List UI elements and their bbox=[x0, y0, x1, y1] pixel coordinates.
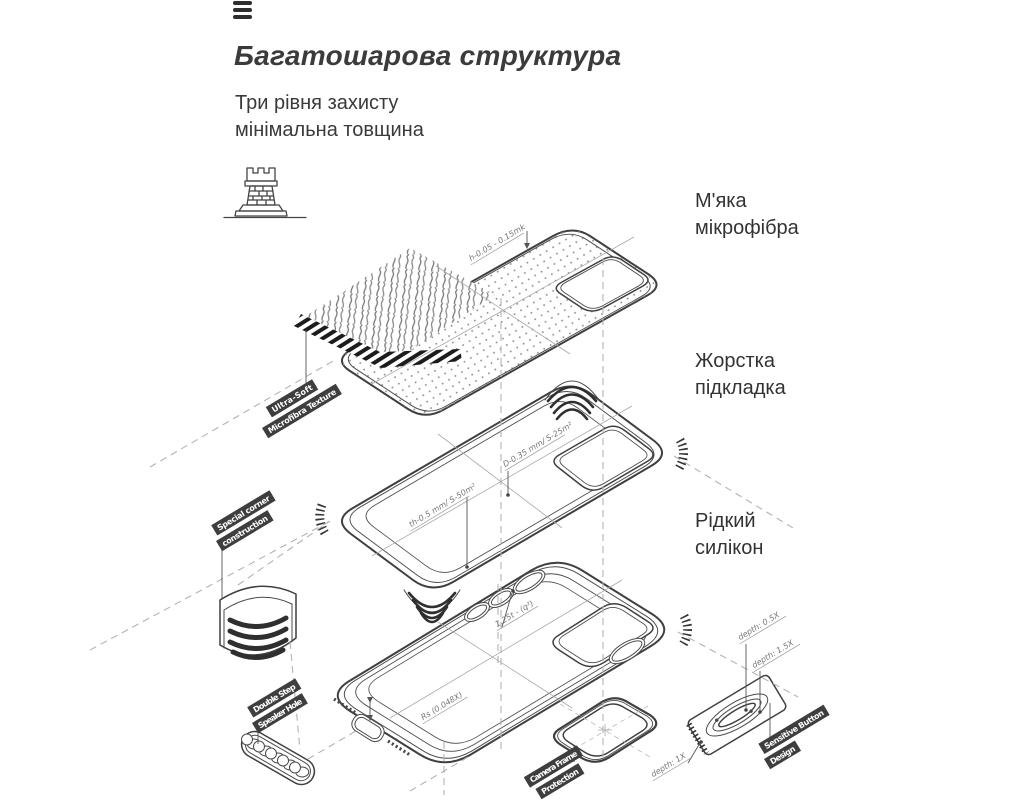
exploded-diagram: h-0.05 - 0.15mk D-0.35 mm/ S-25m² th-0.5… bbox=[0, 0, 1024, 800]
castle-tower-icon bbox=[224, 168, 306, 218]
tray-right-teeth bbox=[678, 440, 684, 470]
speaker-piece-detail bbox=[237, 727, 319, 790]
tag-special-corner: Special corner construction bbox=[208, 490, 284, 551]
tag-ultra-soft: Ultra-Soft Microfibra Texture bbox=[254, 370, 342, 438]
tag-speaker-hole: Double Step Speaker Hole bbox=[244, 678, 310, 733]
annotation-depth-05: depth: 0.5X bbox=[736, 610, 781, 642]
infographic-page: Багатошарова структура Три рівня захисту… bbox=[0, 0, 1024, 800]
tray-bottom-ridges bbox=[404, 590, 460, 622]
hard-lining-layer bbox=[320, 381, 684, 622]
annotation-depth-15: depth: 1.5X bbox=[750, 638, 795, 670]
case-corner-teeth bbox=[682, 616, 688, 646]
annotation-depth-1: depth: 1X bbox=[649, 751, 688, 779]
tray-left-teeth bbox=[320, 505, 326, 535]
corner-piece-detail bbox=[220, 586, 296, 657]
tag-camera-frame: Camera Frame Protection bbox=[524, 745, 592, 800]
